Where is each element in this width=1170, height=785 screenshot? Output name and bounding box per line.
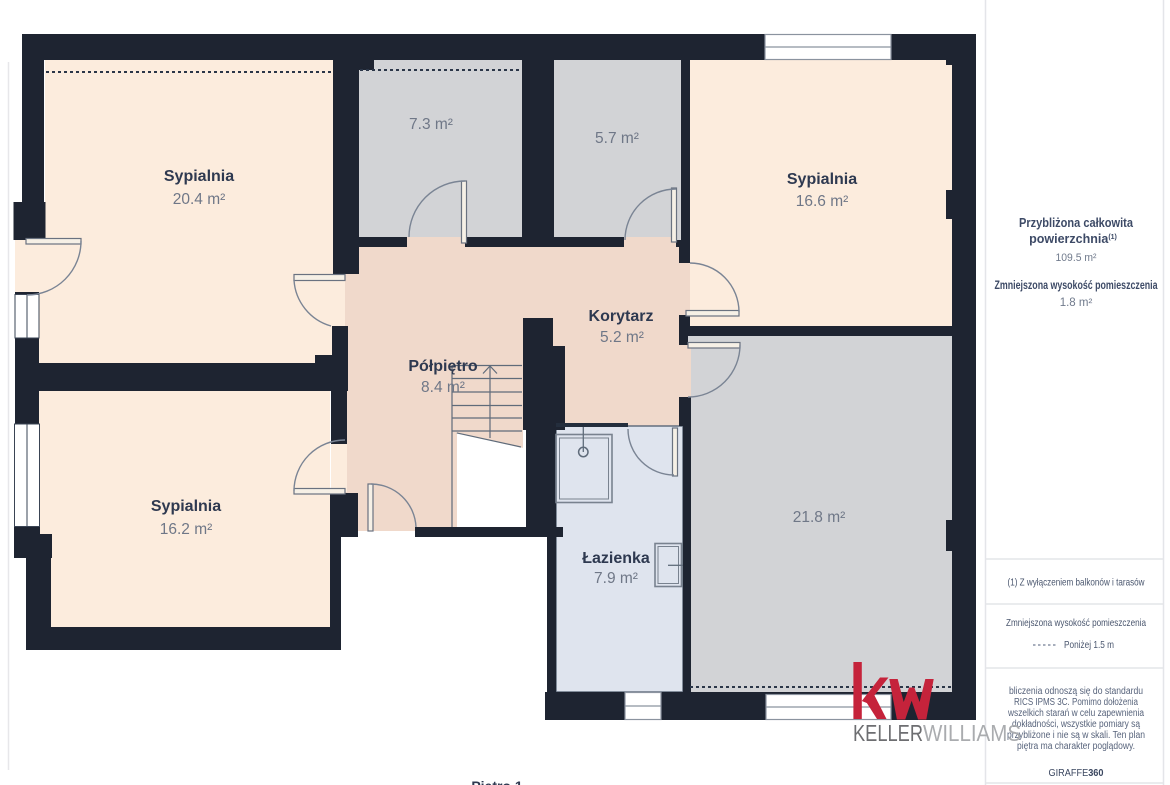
svg-text:Zmniejszona wysokość pomieszcz: Zmniejszona wysokość pomieszczenia — [1006, 617, 1146, 629]
svg-text:RICS IPMS 3C. Pomimo dołożenia: RICS IPMS 3C. Pomimo dołożenia — [1014, 697, 1138, 708]
svg-text:16.6 m²: 16.6 m² — [796, 193, 849, 210]
svg-text:Piętro 1: Piętro 1 — [471, 778, 523, 785]
svg-text:20.4 m²: 20.4 m² — [173, 191, 226, 208]
svg-text:przybliżone i nie są w skali.: przybliżone i nie są w skali. Ten plan — [1007, 730, 1145, 741]
svg-text:Korytarz: Korytarz — [589, 308, 654, 325]
svg-text:powierzchnia(1): powierzchnia(1) — [1029, 232, 1117, 246]
svg-text:5.7 m²: 5.7 m² — [595, 130, 639, 147]
svg-text:7.9 m²: 7.9 m² — [594, 570, 638, 587]
svg-text:Sypialnia: Sypialnia — [787, 171, 857, 188]
svg-text:Sypialnia: Sypialnia — [151, 498, 221, 515]
svg-text:5.2 m²: 5.2 m² — [600, 329, 644, 346]
svg-text:Sypialnia: Sypialnia — [164, 168, 234, 185]
svg-text:Poniżej 1.5 m: Poniżej 1.5 m — [1064, 639, 1114, 651]
svg-text:WILLIAMS: WILLIAMS — [923, 720, 1021, 746]
svg-text:16.2 m²: 16.2 m² — [160, 521, 213, 538]
svg-text:Półpiętro: Półpiętro — [408, 358, 478, 375]
svg-text:109.5 m²: 109.5 m² — [1056, 252, 1097, 264]
svg-text:Przybliżona całkowita: Przybliżona całkowita — [1019, 216, 1134, 230]
svg-text:1.8 m²: 1.8 m² — [1060, 297, 1093, 309]
svg-text:Zmniejszona wysokość pomieszcz: Zmniejszona wysokość pomieszczenia — [995, 280, 1158, 292]
svg-text:KELLER: KELLER — [853, 720, 923, 746]
svg-text:21.8 m²: 21.8 m² — [793, 509, 846, 526]
svg-text:(1) Z wyłączeniem balkonów i t: (1) Z wyłączeniem balkonów i tarasów — [1008, 577, 1145, 589]
svg-text:wszelkich starań w celu zapewn: wszelkich starań w celu zapewnienia — [1007, 708, 1144, 719]
svg-text:GIRAFFE360: GIRAFFE360 — [1049, 767, 1104, 779]
svg-text:dokładności, wszystkie pomiary: dokładności, wszystkie pomiary są — [1012, 719, 1140, 730]
svg-text:7.3 m²: 7.3 m² — [409, 116, 453, 133]
svg-text:8.4 m²: 8.4 m² — [421, 379, 465, 396]
svg-text:Łazienka: Łazienka — [582, 550, 650, 567]
svg-text:bliczenia odnoszą się do stand: bliczenia odnoszą się do standardu — [1009, 686, 1143, 697]
svg-text:piętra ma charakter poglądowy.: piętra ma charakter poglądowy. — [1017, 741, 1135, 752]
